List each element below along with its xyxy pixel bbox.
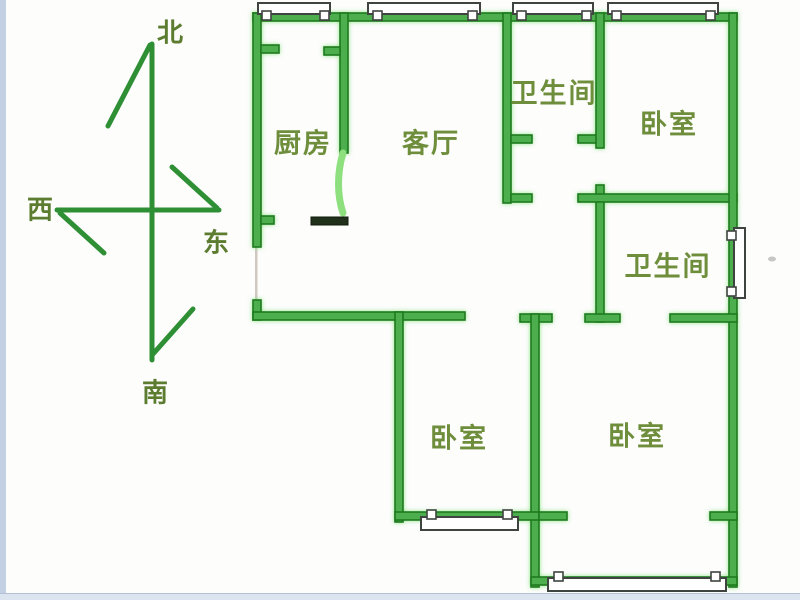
- compass-rose: [57, 44, 219, 360]
- room-label-kitchen: 厨房: [274, 122, 332, 161]
- wall-bathroom2-bottom-left-arm: [585, 314, 620, 322]
- floor-plan-canvas: 厨房 客厅 卫生间 卧室 卫生间 卧室 卧室 北 西 东 南: [0, 0, 800, 600]
- compass-label-south: 南: [142, 373, 168, 410]
- wall-kitchen-stub-bottom: [261, 216, 274, 224]
- compass-south-arrow-barb: [153, 309, 193, 354]
- wall-bedroom1-bottom: [578, 194, 737, 202]
- wall-left-exterior-upper: [253, 13, 261, 247]
- room-label-bedroom-top-right: 卧室: [640, 103, 698, 142]
- wall-bedroom2-left: [395, 312, 403, 522]
- wall-mid-vertical: [596, 185, 604, 322]
- kitchen-door-leaf: [339, 153, 344, 213]
- window-bedroom-bottom-right: [548, 572, 726, 591]
- smudge-mark: [768, 257, 776, 262]
- wall-bathroom2-bottom-right-arm: [670, 314, 737, 322]
- wall-bathroom1-door-stub-left: [511, 135, 532, 143]
- compass-west-arrow-barb: [60, 213, 104, 253]
- wall-right-exterior: [729, 13, 737, 587]
- compass-north-arrow-barb: [108, 45, 150, 126]
- kitchen-bottom-dark-segment: [311, 217, 348, 225]
- compass-east-arrow-barb: [172, 167, 217, 208]
- compass-label-west: 西: [27, 190, 53, 227]
- floor-plan-drawing: [0, 0, 800, 600]
- wall-hall-bottom: [253, 312, 465, 320]
- room-label-bathroom-top: 卫生间: [511, 72, 598, 111]
- wall-kitchen-stub-left: [261, 45, 279, 53]
- wall-kitchen-stub-right: [324, 47, 340, 55]
- walls: [253, 13, 737, 587]
- room-label-bathroom-right: 卫生间: [625, 245, 712, 284]
- wall-bathroom1-door-stub-right: [578, 135, 597, 143]
- wall-bedroom3-mid-stub-right: [710, 512, 737, 520]
- room-label-bedroom-bottom-right: 卧室: [608, 415, 666, 454]
- compass-label-north: 北: [157, 13, 183, 50]
- room-label-bedroom-bottom-middle: 卧室: [430, 417, 488, 456]
- windows: [258, 3, 745, 591]
- compass-label-east: 东: [203, 223, 229, 260]
- wall-bedroom3-mid-stub-left: [539, 512, 567, 520]
- wall-kitchen-divider: [340, 13, 348, 153]
- entry-door-opening: [255, 245, 258, 302]
- wall-bedrooms-divider: [531, 314, 539, 587]
- room-label-living-room: 客厅: [402, 122, 460, 161]
- wall-bathroom1-foot: [511, 194, 532, 202]
